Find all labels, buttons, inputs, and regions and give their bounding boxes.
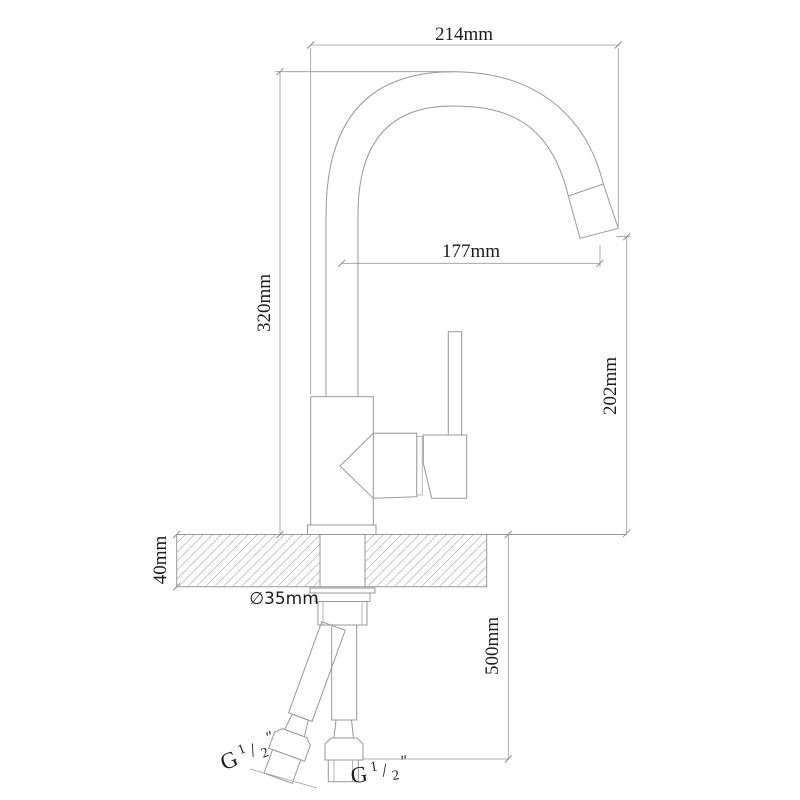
thread-denominator: 2 bbox=[391, 768, 400, 784]
dimension-lines bbox=[173, 42, 630, 763]
dim-hole-diameter-label: ∅35mm bbox=[249, 589, 319, 609]
drawing-canvas: 214mm 320mm 177mm 202mm 500mm 40mm ∅35mm… bbox=[0, 0, 800, 800]
thread-numerator: 1 bbox=[236, 742, 248, 759]
thread-slash: / bbox=[380, 760, 389, 782]
faucet-body bbox=[311, 397, 374, 525]
valve-cone bbox=[340, 433, 417, 498]
faucet-outline bbox=[308, 72, 619, 535]
washer-plate bbox=[310, 588, 375, 593]
dim-hose-length-label: 500mm bbox=[482, 617, 503, 675]
thread-slash: / bbox=[247, 740, 260, 762]
hose-braid bbox=[332, 625, 357, 720]
supply-hose-right bbox=[325, 625, 363, 782]
fixing-hardware bbox=[310, 588, 375, 625]
spline-washer bbox=[315, 593, 370, 602]
countertop-section bbox=[177, 535, 627, 587]
hose-nut bbox=[325, 738, 363, 760]
spout-outer-curve bbox=[326, 72, 603, 397]
dim-320-line bbox=[275, 72, 452, 535]
dim-spout-height-label: 320mm bbox=[254, 274, 275, 332]
thread-denominator: 2 bbox=[259, 745, 271, 762]
handle-base bbox=[423, 435, 466, 498]
dim-counter-thickness-label: 40mm bbox=[150, 536, 171, 585]
spout-tip bbox=[568, 184, 618, 238]
dim-214-line bbox=[311, 45, 619, 394]
dim-overall-width-label: 214mm bbox=[435, 24, 493, 45]
mounting-nut bbox=[318, 602, 367, 626]
thread-label-left: G 1 / 2 ″ bbox=[216, 728, 281, 777]
counter-hatch-right bbox=[366, 535, 487, 586]
mounting-nut-facets bbox=[323, 602, 362, 626]
thread-leader-line bbox=[250, 769, 317, 788]
dim-outlet-height-label: 202mm bbox=[600, 357, 621, 415]
thread-prefix: G bbox=[349, 761, 369, 788]
thread-numerator: 1 bbox=[369, 759, 378, 775]
counter-hatch-left bbox=[177, 535, 319, 586]
thread-label-right: G 1 / 2 ″ bbox=[349, 753, 411, 791]
faucet-technical-drawing: 214mm 320mm 177mm 202mm 500mm 40mm ∅35mm… bbox=[0, 0, 800, 800]
valve-collar bbox=[417, 437, 423, 496]
hose-ferrule bbox=[285, 714, 311, 737]
thread-unit: ″ bbox=[400, 753, 409, 771]
dim-spout-reach-label: 177mm bbox=[442, 241, 500, 262]
hose-ferrule bbox=[334, 720, 354, 738]
thread-unit: ″ bbox=[264, 728, 277, 746]
base-flange bbox=[308, 525, 377, 535]
hose-braid bbox=[289, 622, 346, 722]
lever-rod bbox=[448, 332, 461, 435]
dim-ticks bbox=[173, 42, 630, 763]
dimension-labels: 214mm 320mm 177mm 202mm 500mm 40mm ∅35mm… bbox=[150, 24, 621, 790]
